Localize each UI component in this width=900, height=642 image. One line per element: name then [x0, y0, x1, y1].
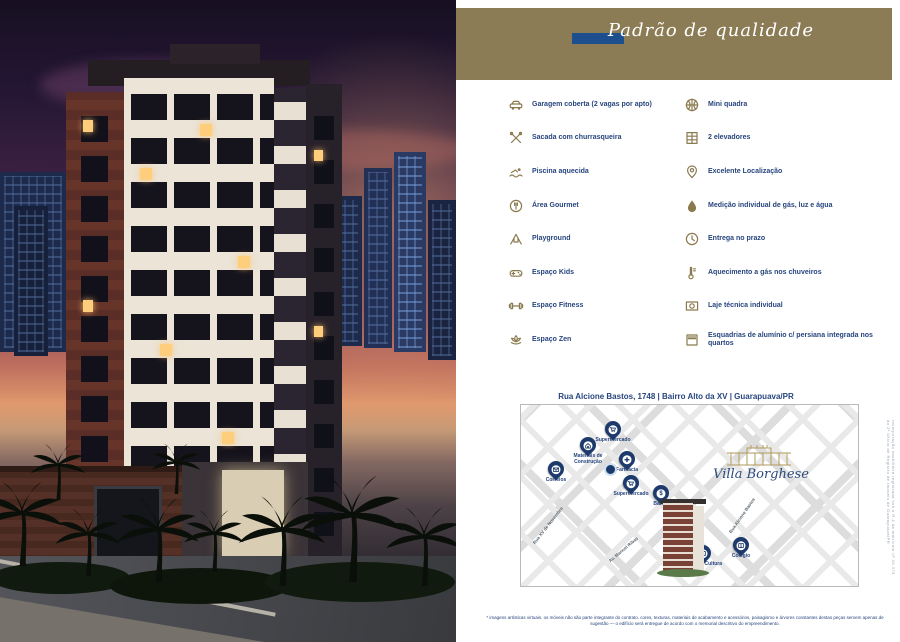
- amenity-label: Espaço Kids: [532, 269, 574, 277]
- tower-roof-box: [170, 44, 260, 64]
- amenity-item: 2 elevadores: [684, 122, 892, 156]
- amenity-label: Sacada com churrasqueira: [532, 134, 622, 142]
- street-label: Rua Alcione Bastos: [728, 497, 756, 534]
- amenities-left-column: Garagem coberta (2 vagas por apto) Sacad…: [508, 88, 686, 357]
- amenity-item: Espaço Zen: [508, 323, 686, 357]
- address-line: Rua Alcione Bastos, 1748 | Bairro Alto d…: [496, 392, 856, 401]
- house-icon: [584, 441, 593, 450]
- amenity-label: Esquadrias de alumínio c/ persiana integ…: [708, 332, 892, 348]
- amenity-item: Mini quadra: [684, 88, 892, 122]
- water-drop-icon: [684, 198, 700, 214]
- basketball-icon: [684, 97, 700, 113]
- amenity-label: Medição individual de gás, luz e água: [708, 202, 832, 210]
- amenity-item: Área Gourmet: [508, 189, 686, 223]
- amenity-item: Laje técnica individual: [684, 290, 892, 324]
- dumbbell-icon: [508, 298, 524, 314]
- cart-icon: [609, 425, 618, 434]
- swimmer-icon: [508, 164, 524, 180]
- playground-icon: [508, 231, 524, 247]
- amenity-label: Aquecimento a gás nos chuveiros: [708, 269, 822, 277]
- brand-name: Villa Borghese: [681, 467, 841, 482]
- registry-note: Incorporação imobiliária registrada sob …: [886, 420, 896, 580]
- lit-window: [140, 168, 152, 180]
- thermometer-icon: [684, 265, 700, 281]
- amenity-item: Aquecimento a gás nos chuveiros: [684, 256, 892, 290]
- lit-window: [314, 326, 323, 337]
- book-icon: [737, 541, 746, 550]
- lit-window: [160, 344, 172, 356]
- amenity-item: Piscina aquecida: [508, 155, 686, 189]
- amenity-label: Espaço Fitness: [532, 302, 583, 310]
- envelope-icon: [552, 465, 561, 474]
- disclaimer-text: * imagens artísticas virtuais. os móveis…: [482, 615, 888, 627]
- amenity-label: Excelente Localização: [708, 168, 782, 176]
- info-page: Padrão de qualidade Garagem coberta (2 v…: [456, 0, 900, 642]
- amenity-label: Piscina aquecida: [532, 168, 589, 176]
- window-icon: [684, 332, 700, 348]
- lit-window: [83, 300, 93, 312]
- background-building: [364, 168, 392, 348]
- amenity-label: Garagem coberta (2 vagas por apto): [532, 101, 652, 109]
- amenity-item: Esquadrias de alumínio c/ persiana integ…: [684, 323, 892, 357]
- amenity-label: Espaço Zen: [532, 336, 571, 344]
- map-pin-correios: Correios: [536, 461, 576, 484]
- street-label: Rua XV de Novembro: [532, 506, 564, 545]
- amenities-right-column: Mini quadra 2 elevadores Excelente Local…: [684, 88, 892, 357]
- pharmacy-cross-icon: [623, 455, 632, 464]
- palm-trees: [0, 360, 456, 642]
- map-pin-icon: [684, 164, 700, 180]
- lit-window: [83, 120, 93, 132]
- background-building: [394, 152, 426, 352]
- slab-icon: [684, 298, 700, 314]
- clock-icon: [684, 231, 700, 247]
- header-band: [456, 8, 892, 80]
- lit-window: [314, 150, 323, 161]
- amenity-item: Playground: [508, 222, 686, 256]
- background-building: [428, 200, 456, 360]
- gamepad-icon: [508, 265, 524, 281]
- amenity-item: Garagem coberta (2 vagas por apto): [508, 88, 686, 122]
- lit-window: [200, 124, 212, 136]
- amenity-label: Mini quadra: [708, 101, 747, 109]
- amenity-item: Medição individual de gás, luz e água: [684, 189, 892, 223]
- amenity-item: Sacada com churrasqueira: [508, 122, 686, 156]
- building-render-image: [0, 0, 456, 642]
- amenity-label: 2 elevadores: [708, 134, 750, 142]
- street-label: Av. Manoel Ribas: [608, 536, 639, 563]
- map-building-render: [657, 497, 709, 581]
- brochure-page: Padrão de qualidade Garagem coberta (2 v…: [0, 0, 900, 642]
- lotus-icon: [508, 332, 524, 348]
- background-building: [14, 206, 48, 356]
- villa-borghese-logo-icon: [717, 443, 801, 469]
- amenity-label: Playground: [532, 235, 571, 243]
- location-map: Supermercado Materiais de Construção Far…: [520, 404, 859, 587]
- amenity-item: Espaço Kids: [508, 256, 686, 290]
- amenity-item: Excelente Localização: [684, 155, 892, 189]
- amenity-item: Entrega no prazo: [684, 222, 892, 256]
- page-title: Padrão de qualidade: [596, 20, 826, 41]
- car-icon: [508, 97, 524, 113]
- lit-window: [238, 256, 250, 268]
- gourmet-icon: [508, 198, 524, 214]
- amenity-item: Espaço Fitness: [508, 290, 686, 324]
- map-pin-colegio: Colégio: [721, 537, 761, 560]
- amenity-label: Laje técnica individual: [708, 302, 783, 310]
- amenity-label: Área Gourmet: [532, 202, 579, 210]
- elevator-icon: [684, 130, 700, 146]
- cart-icon: [627, 479, 636, 488]
- bbq-icon: [508, 130, 524, 146]
- amenity-label: Entrega no prazo: [708, 235, 765, 243]
